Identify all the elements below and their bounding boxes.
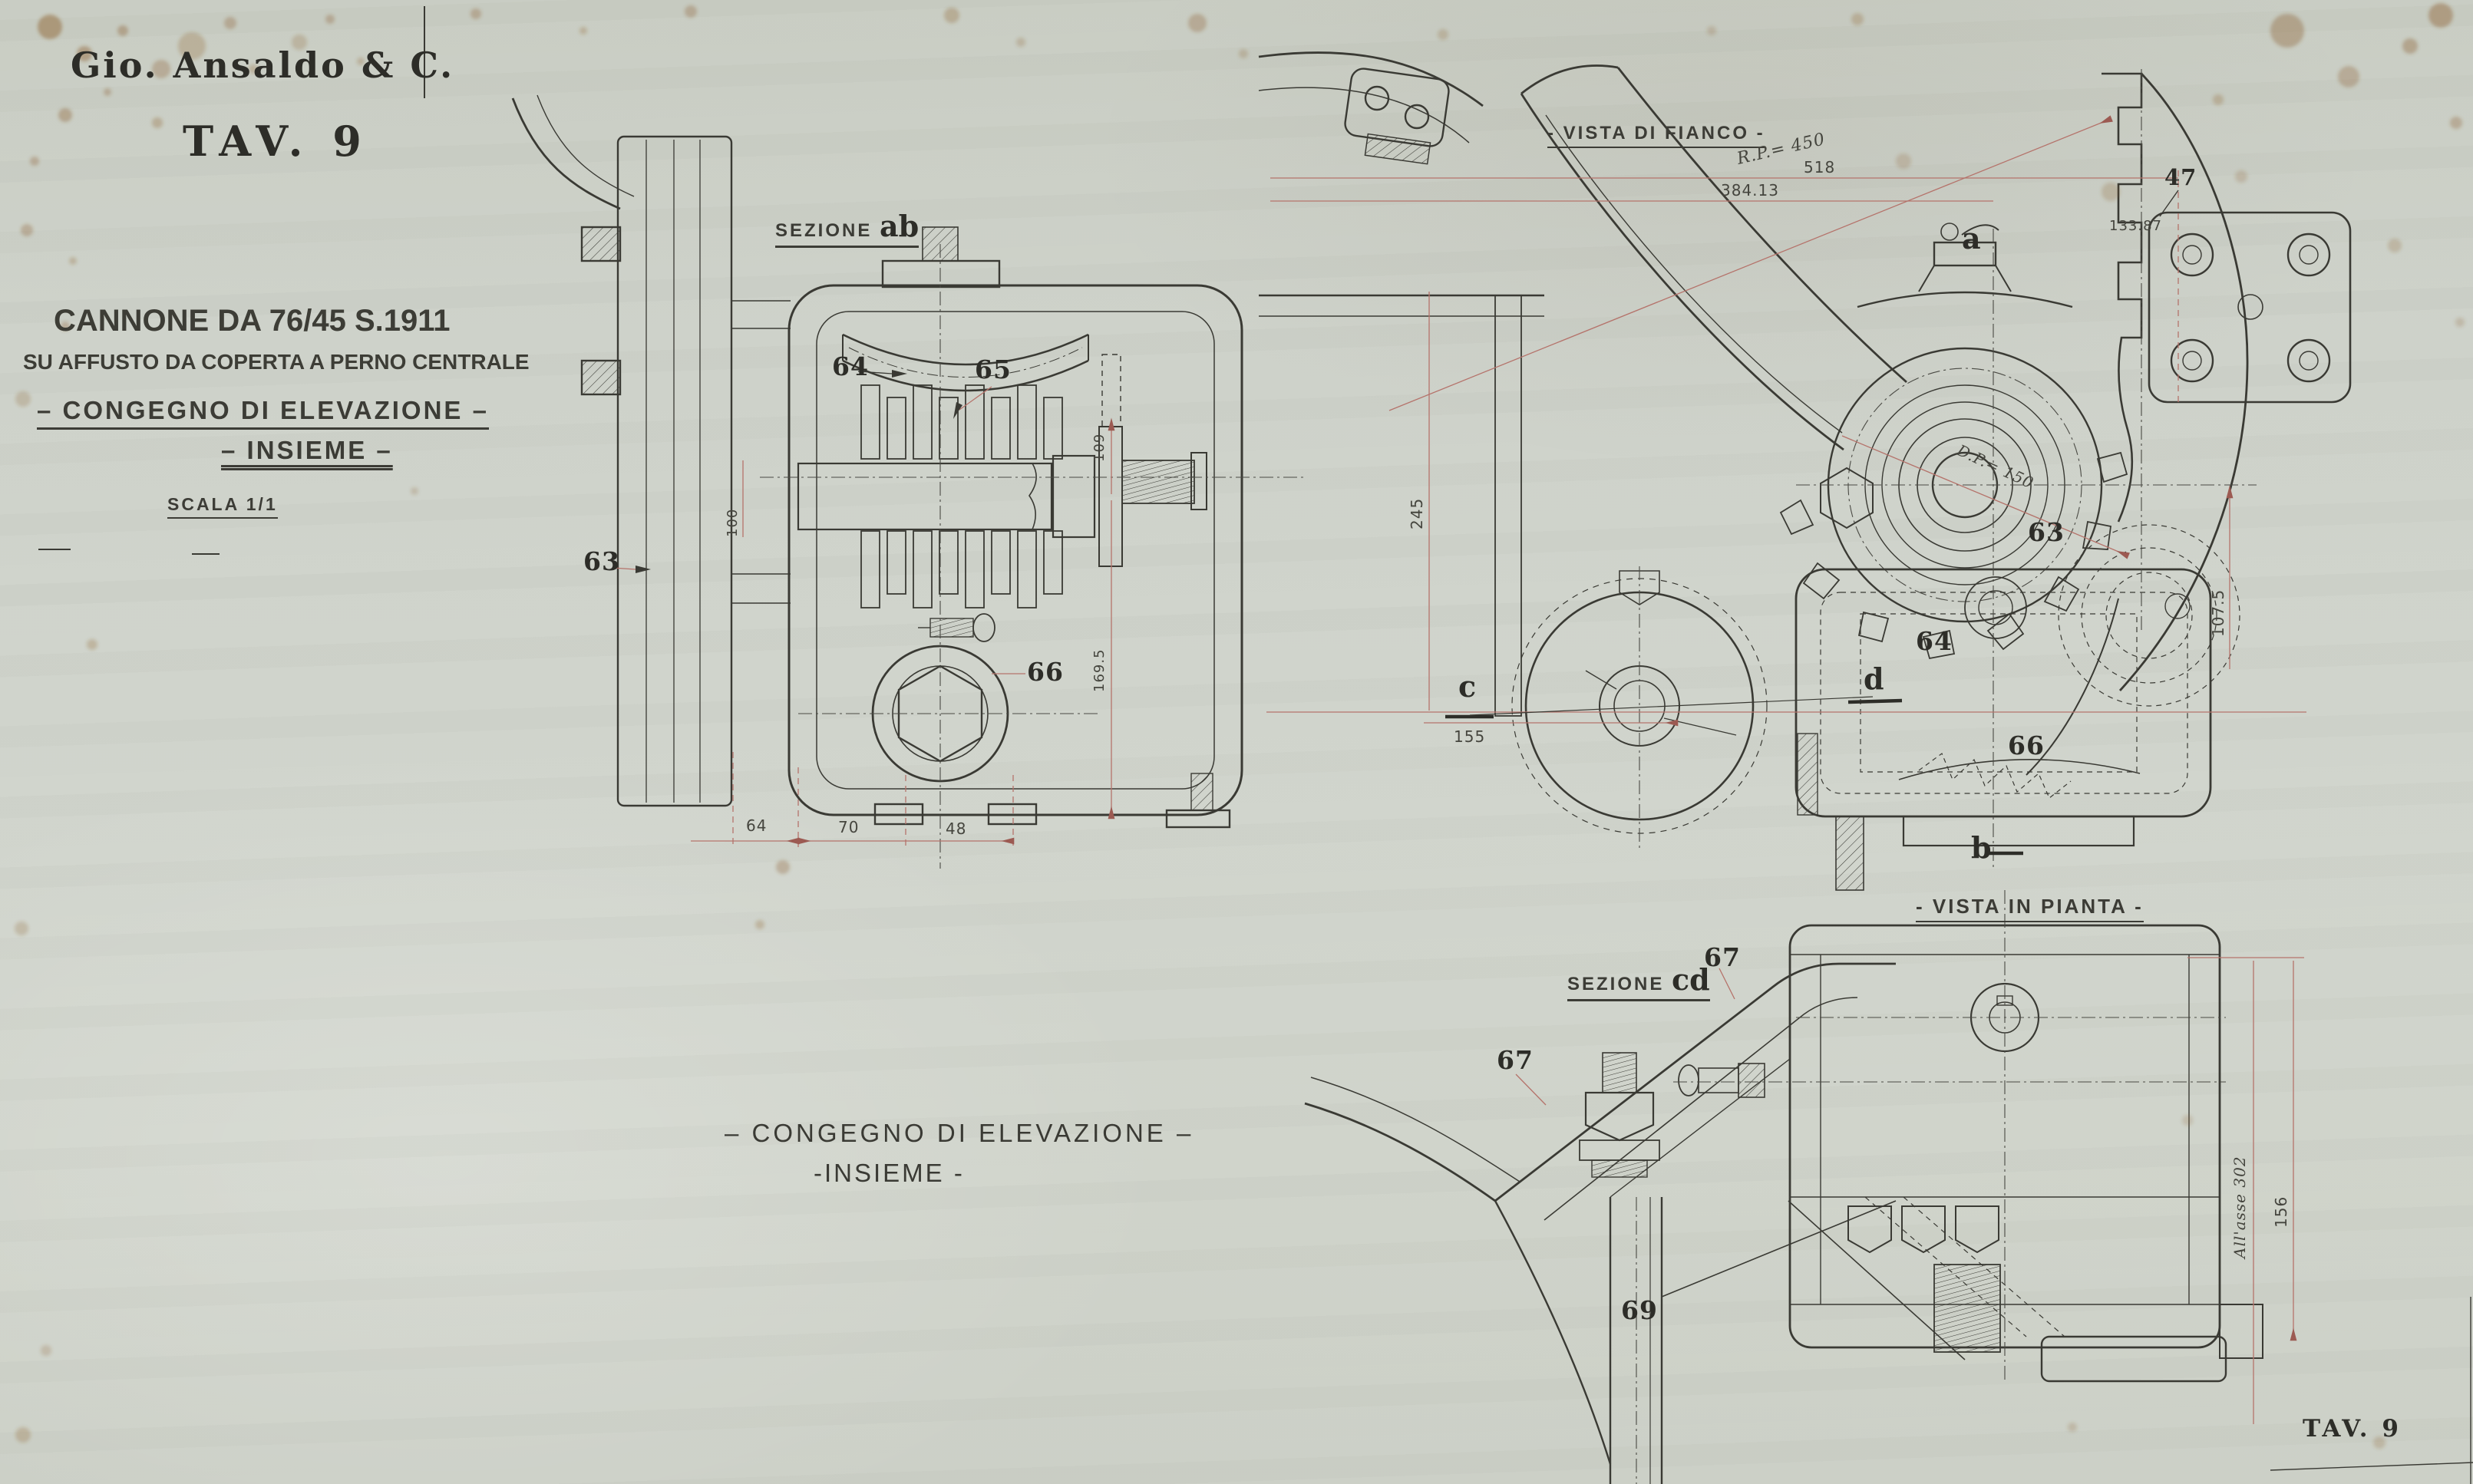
plate-number: TAV. 9 (183, 117, 369, 166)
drawing-sheet: Gio. Ansaldo & C. TAV. 9 CANNONE DA 76/4… (0, 0, 2473, 1484)
section-letter-c: c (1458, 669, 1476, 704)
sezione-cd-label: SEZIONE cd (1567, 962, 1710, 1001)
dim-107: 107.5 (2209, 589, 2227, 637)
sezione-ab-dimension-lines (691, 430, 1111, 847)
part-63-right: 63 (2028, 517, 2065, 547)
dim-155: 155 (1454, 727, 1485, 746)
part-66-right: 66 (2008, 730, 2045, 760)
subject-line1: CANNONE DA 76/45 S.1911 (54, 304, 451, 338)
sezione-ab-label: SEZIONE ab (775, 209, 919, 248)
scale-note: SCALA 1/1 (167, 494, 278, 519)
part-63-left: 63 (583, 546, 620, 576)
border-marks (38, 6, 2473, 1484)
dim-asse-302: All'asse 302 (2230, 1156, 2249, 1258)
sezione-ab-prefix: SEZIONE (775, 220, 880, 241)
part-64-left: 64 (832, 351, 869, 381)
sezione-ab-letters: ab (880, 209, 919, 243)
dim-100: 100 (725, 509, 741, 537)
subject-line3: – CONGEGNO DI ELEVAZIONE – (37, 396, 489, 430)
dim-245: 245 (1408, 498, 1426, 529)
vista-fianco-dimension-lines (1266, 119, 2306, 723)
dim-169: 169.5 (1091, 648, 1108, 692)
company-title: Gio. Ansaldo & C. (71, 45, 454, 86)
dim-64: 64 (746, 816, 767, 835)
caption-line1: – CONGEGNO DI ELEVAZIONE – (725, 1119, 1194, 1148)
sezione-ab-centerlines (760, 244, 1305, 869)
part-67-bottom: 67 (1497, 1045, 1534, 1075)
dim-156: 156 (2272, 1196, 2290, 1228)
dim-133: 133.87 (2109, 218, 2162, 234)
dim-518: 518 (1804, 158, 1835, 176)
part-47: 47 (2164, 164, 2197, 190)
part-65: 65 (975, 355, 1012, 384)
technical-drawing (0, 0, 2473, 1484)
section-letter-b: b (1971, 830, 1992, 865)
sezione-cd-prefix: SEZIONE (1567, 974, 1672, 994)
dim-70: 70 (838, 818, 859, 836)
vista-pianta-view (1305, 925, 2263, 1484)
subject-line2: SU AFFUSTO DA COPERTA A PERNO CENTRALE (23, 350, 530, 374)
section-letter-d: d (1864, 661, 1884, 696)
subject-line4: – INSIEME – (221, 436, 393, 465)
dim-109: 109 (1091, 434, 1108, 462)
part-64-right: 64 (1916, 626, 1953, 656)
vista-fianco-label: - VISTA DI FIANCO - (1547, 123, 1765, 148)
dim-384: 384.13 (1721, 181, 1779, 200)
foxing-stains (15, 3, 2465, 1449)
section-letter-a: a (1962, 221, 1981, 256)
part-69: 69 (1621, 1295, 1658, 1325)
section-line-strokes (1445, 701, 2023, 853)
part-66-left: 66 (1027, 657, 1064, 687)
vista-pianta-label: - VISTA IN PIANTA - (1916, 895, 2144, 922)
part-67-top: 67 (1704, 942, 1741, 972)
dim-48: 48 (946, 819, 966, 838)
footer-plate-number: TAV. 9 (2303, 1415, 2402, 1443)
caption-line2: -INSIEME - (814, 1159, 965, 1188)
sezione-ab-view (513, 95, 1242, 827)
